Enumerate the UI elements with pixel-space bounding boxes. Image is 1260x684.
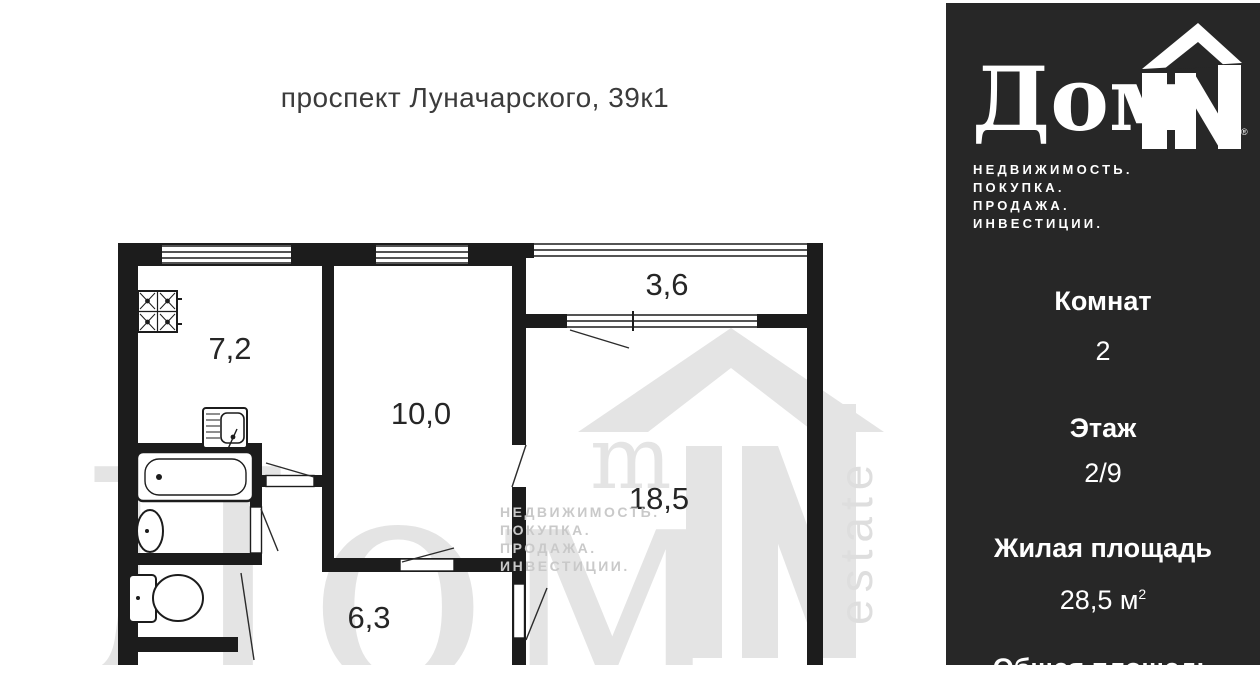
stat-total-area-label-cutoff: Общая площадь [946, 653, 1260, 684]
svg-text:НЕДВИЖИМОСТЬ.: НЕДВИЖИМОСТЬ. [500, 504, 660, 520]
balcony-door-swing [570, 330, 629, 348]
room-label-hallway: 6,3 [347, 600, 390, 635]
svg-text:ПРОДАЖА.: ПРОДАЖА. [500, 540, 597, 556]
stat-floor-label: Этаж [946, 413, 1260, 443]
registered-mark: ® [1241, 127, 1248, 137]
bedroom-window [376, 245, 468, 264]
house-logo-icon [1142, 17, 1242, 149]
stat-rooms-value: 2 [946, 336, 1260, 366]
svg-text:ИНВЕСТИЦИИ.: ИНВЕСТИЦИИ. [500, 558, 630, 574]
stove-icon [138, 291, 182, 332]
balcony-door-window [567, 311, 757, 331]
svg-text:ПОКУПКА.: ПОКУПКА. [500, 522, 591, 538]
brand-tagline: НЕДВИЖИМОСТЬ. ПОКУПКА. ПРОДАЖА. ИНВЕСТИЦ… [973, 161, 1133, 233]
wall-opening [512, 445, 526, 487]
washbasin-icon [137, 510, 163, 552]
watermark-estate-text: estate [830, 458, 882, 625]
bathtub-icon [137, 452, 253, 501]
toilet-icon [129, 575, 203, 622]
stat-rooms-label: Комнат [946, 286, 1260, 316]
tagline-line: ИНВЕСТИЦИИ. [973, 215, 1133, 233]
sink-icon [203, 408, 247, 451]
stat-living-area-label: Жилая площадь [946, 533, 1260, 563]
tagline-line: ПРОДАЖА. [973, 197, 1133, 215]
kitchen-window [162, 245, 291, 264]
stat-floor-value: 2/9 [946, 458, 1260, 488]
floor-plan: Дом m estate [0, 0, 950, 665]
tagline-line: ПОКУПКА. [973, 179, 1133, 197]
room-label-balcony: 3,6 [645, 267, 688, 302]
stat-living-area-value: 28,5 м2 [946, 579, 1260, 615]
floorplan-poster: { "title": "проспект Луначарского, 39к1"… [0, 0, 1260, 665]
room-label-kitchen: 7,2 [208, 331, 251, 366]
brand-sidebar: Дом estate ® НЕДВИЖИМОСТЬ. ПОКУПКА. ПРОД… [946, 3, 1260, 665]
room-label-bedroom: 10,0 [391, 396, 451, 431]
balcony-glazing [534, 243, 807, 258]
tagline-line: НЕДВИЖИМОСТЬ. [973, 161, 1133, 179]
